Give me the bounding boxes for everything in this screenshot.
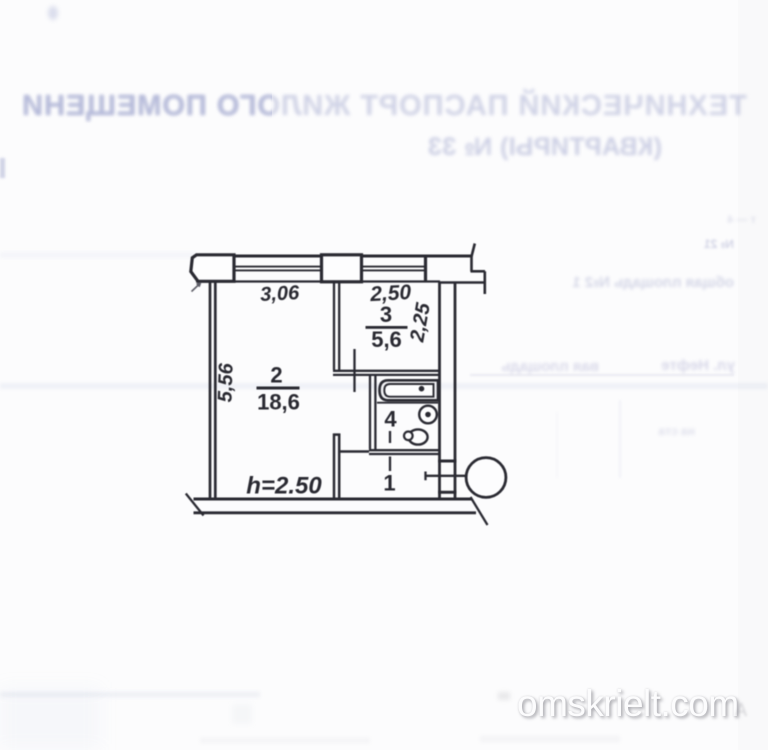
svg-text:5,6: 5,6 (371, 327, 402, 352)
svg-text:2,25: 2,25 (406, 301, 435, 345)
svg-text:5,56: 5,56 (214, 362, 237, 403)
svg-text:1: 1 (383, 471, 395, 496)
svg-text:3,06: 3,06 (260, 282, 301, 306)
svg-text:18,6: 18,6 (257, 390, 300, 415)
svg-text:3: 3 (380, 302, 392, 327)
svg-text:2: 2 (270, 363, 282, 388)
svg-text:4: 4 (384, 407, 397, 432)
svg-text:h=2.50: h=2.50 (246, 473, 322, 500)
